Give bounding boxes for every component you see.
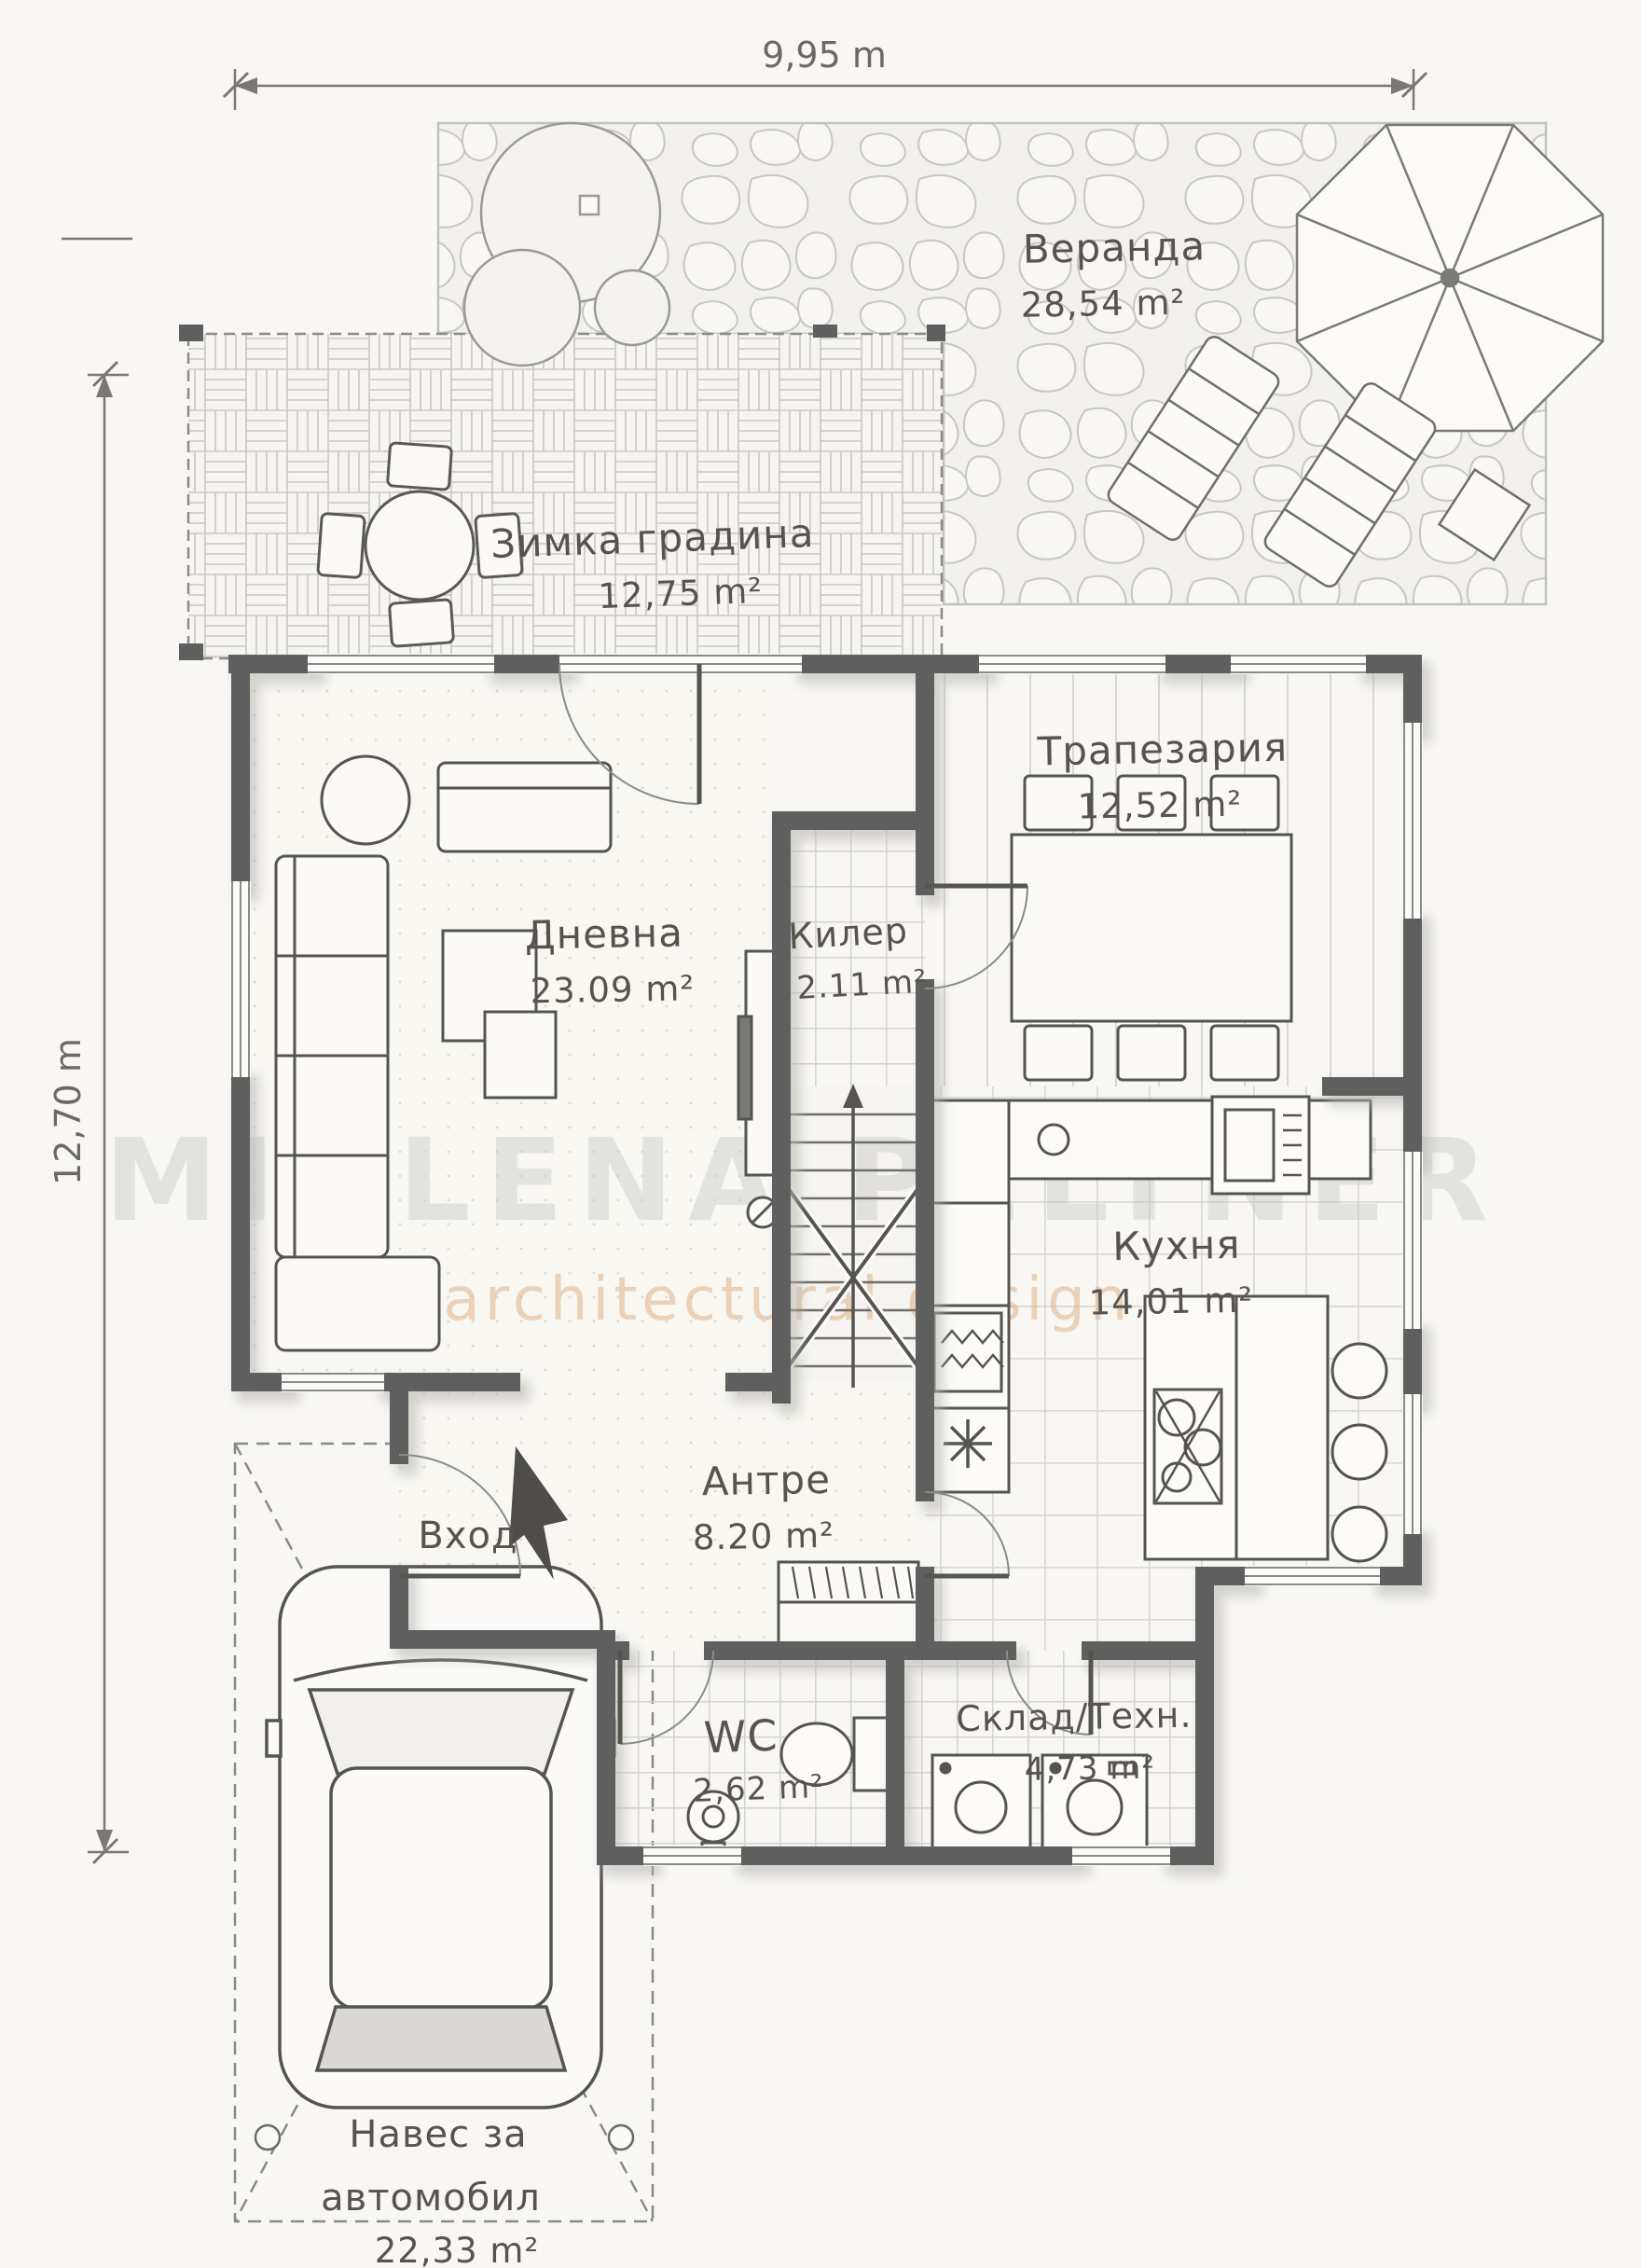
window bbox=[1245, 1566, 1380, 1586]
window bbox=[1231, 654, 1366, 674]
kitchen-fittings bbox=[927, 1097, 1386, 1561]
window bbox=[230, 881, 251, 1077]
room-area: 8.20 m² bbox=[693, 1515, 835, 1558]
bar-stool bbox=[1332, 1425, 1386, 1479]
room-name: Кухня bbox=[1112, 1222, 1241, 1269]
window bbox=[979, 654, 1165, 674]
floor-plan-sheet: MIGLENA PELTNER architectural design bbox=[0, 0, 1641, 2268]
side-table bbox=[322, 756, 409, 844]
hall-closet bbox=[779, 1562, 918, 1643]
bar-stool bbox=[1332, 1344, 1386, 1398]
garden-chair bbox=[318, 513, 365, 577]
room-name: Антре bbox=[701, 1457, 831, 1504]
room-name: автомобил bbox=[321, 2177, 541, 2220]
garden-chair bbox=[387, 443, 451, 490]
window bbox=[308, 654, 494, 674]
dining-table bbox=[1012, 835, 1291, 1021]
room-area: 23.09 m² bbox=[530, 968, 695, 1011]
window bbox=[282, 1372, 384, 1392]
dining-chair bbox=[1211, 1026, 1278, 1080]
washing-machine-icon bbox=[932, 1755, 1030, 1850]
window bbox=[1072, 1846, 1170, 1866]
bar-stool bbox=[1332, 1507, 1386, 1561]
window bbox=[1402, 1152, 1423, 1329]
room-area: 12,52 m² bbox=[1077, 784, 1242, 827]
room-name: Трапезария bbox=[1036, 725, 1288, 775]
room-name: Килер bbox=[787, 910, 909, 958]
room-area: 4,73 m² bbox=[1024, 1749, 1155, 1788]
entrance-label: Вход bbox=[418, 1514, 517, 1557]
room-name: Навес за bbox=[349, 2113, 527, 2156]
garden-chair bbox=[389, 600, 453, 646]
window bbox=[559, 654, 802, 674]
car-mirror bbox=[267, 1721, 281, 1756]
carport-post-right bbox=[609, 2125, 633, 2150]
kitchen-sink-icon bbox=[1039, 1125, 1069, 1155]
room-area: 14,01 m² bbox=[1088, 1280, 1253, 1323]
tv-icon bbox=[738, 1016, 752, 1119]
tree-icon bbox=[464, 250, 580, 366]
dining-chair bbox=[1025, 1026, 1092, 1080]
loveseat bbox=[438, 763, 611, 851]
window bbox=[643, 1846, 741, 1866]
room-name: Дневна bbox=[524, 910, 683, 959]
dining-chair bbox=[1118, 1026, 1185, 1080]
room-name: WC bbox=[703, 1710, 779, 1763]
room-name: Склад/Техн. bbox=[956, 1694, 1193, 1739]
floor-plan-drawing: MIGLENA PELTNER architectural design bbox=[0, 0, 1641, 2268]
sofa-chaise bbox=[276, 1257, 439, 1350]
room-area: 28,54 m² bbox=[1020, 283, 1185, 325]
winter-garden-area bbox=[179, 325, 945, 660]
room-area: 2,62 m² bbox=[693, 1768, 825, 1810]
room-area: 12,75 m² bbox=[598, 571, 764, 616]
garden-table bbox=[365, 491, 474, 600]
dimension-left-label: 12,70 m bbox=[48, 1038, 89, 1185]
tree-icon bbox=[595, 270, 669, 345]
parasol-icon bbox=[1297, 125, 1603, 431]
room-area: 2.11 m² bbox=[795, 963, 928, 1007]
room-name: Веранда bbox=[1022, 223, 1206, 271]
window bbox=[1402, 1394, 1423, 1534]
dishwasher-icon bbox=[934, 1313, 1001, 1391]
room-area: 22,33 m² bbox=[375, 2231, 540, 2268]
dimension-top-label: 9,95 m bbox=[762, 35, 887, 76]
carport-post-left bbox=[255, 2125, 280, 2150]
coffee-table bbox=[485, 1012, 556, 1098]
window bbox=[1402, 723, 1423, 919]
